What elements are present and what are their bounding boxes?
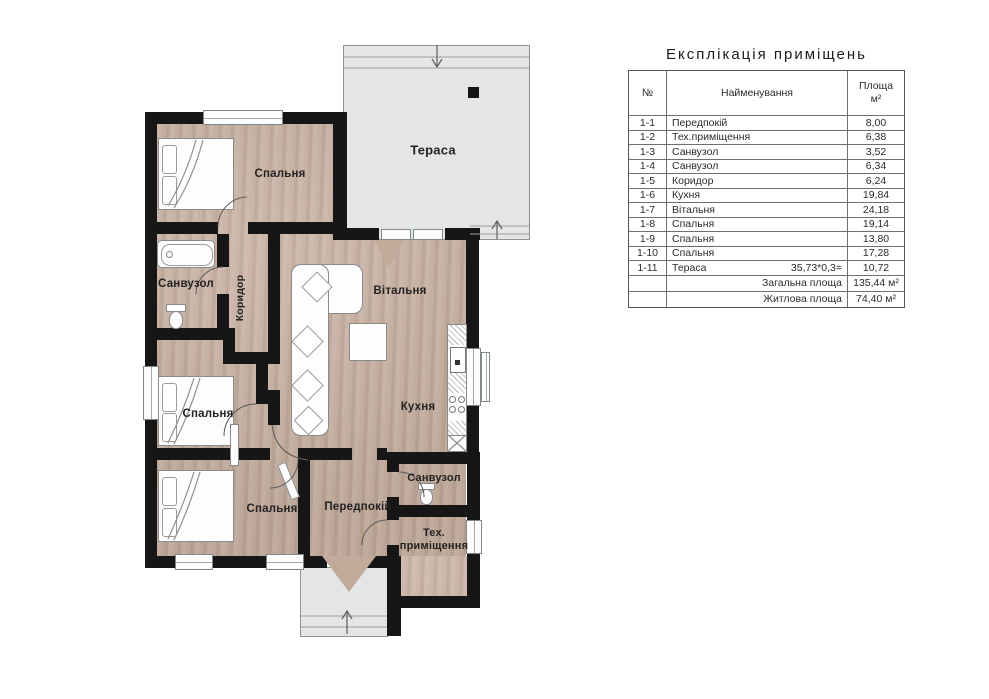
room-label-kitchen: Кухня — [401, 401, 436, 413]
pillow — [162, 145, 177, 174]
row-name: Кухня — [667, 189, 848, 203]
bed — [158, 138, 234, 210]
terrace-door-panel — [413, 229, 443, 240]
toilet — [166, 304, 186, 330]
wall-segment — [387, 452, 480, 464]
summary-value: 135,44 м² — [848, 276, 904, 291]
pillow — [162, 383, 177, 412]
row-name: Спальня — [667, 232, 848, 246]
tech-room-floor — [399, 556, 467, 596]
window-sill — [481, 352, 490, 402]
explication-title: Експлікація приміщень — [628, 46, 905, 63]
row-name: Санвузол — [667, 145, 848, 159]
tech-room-line2: приміщення — [400, 540, 468, 553]
row-area: 13,80 — [848, 232, 904, 246]
terrace-column — [468, 87, 479, 98]
row-area: 19,14 — [848, 218, 904, 232]
wall-segment — [377, 448, 387, 460]
room-label-bathroom-main: Санвузол — [158, 278, 214, 290]
kitchen-worktop — [448, 373, 466, 393]
table-row: 1-2Тех.приміщення6,38 — [629, 130, 904, 145]
wall-segment — [145, 328, 235, 340]
pillow — [162, 413, 177, 442]
wall-segment — [248, 222, 345, 234]
room-label-bathroom-small: Санвузол — [407, 472, 461, 484]
table-row: 1-8Спальня19,14 — [629, 217, 904, 232]
window — [175, 554, 213, 570]
room-name: Спальня — [672, 233, 714, 245]
wall-segment — [298, 460, 310, 556]
room-label-bedroom-top: Спальня — [254, 168, 305, 180]
room-label-bedroom-middle: Спальня — [182, 408, 233, 420]
table-row: 1-9Спальня13,80 — [629, 231, 904, 246]
floor-plan: Тераса Спальня Санвузол Коридор Вітальня… — [0, 0, 620, 699]
window — [203, 110, 283, 125]
wall-segment — [145, 420, 157, 568]
area-formula: 35,73*0,3= — [787, 262, 842, 274]
row-name: Тех.приміщення — [667, 131, 848, 145]
room-label-bedroom-bottom: Спальня — [246, 503, 297, 515]
summary-row: Житлова площа74,40 м² — [629, 291, 904, 307]
table-row: 1-6Кухня19,84 — [629, 188, 904, 203]
room-label-living-room: Вітальня — [373, 285, 426, 297]
header-area-line1: Площа — [859, 80, 893, 93]
summary-label: Загальна площа — [667, 276, 848, 291]
toilet — [418, 483, 435, 506]
wall-segment — [399, 505, 467, 517]
table-row: 1-11Тераса35,73*0,3=10,72 — [629, 260, 904, 275]
wall-segment — [333, 112, 347, 240]
room-name: Кухня — [672, 189, 700, 201]
room-name: Тераса — [672, 262, 706, 274]
row-number: 1-5 — [629, 174, 667, 188]
row-number: 1-2 — [629, 131, 667, 145]
wall-segment — [466, 240, 479, 350]
row-number: 1-4 — [629, 160, 667, 174]
row-number: 1-10 — [629, 247, 667, 261]
wall-segment — [387, 556, 401, 636]
row-area: 17,28 — [848, 247, 904, 261]
header-name: Найменування — [667, 71, 848, 115]
row-area: 10,72 — [848, 261, 904, 275]
wall-segment — [256, 364, 268, 404]
row-number: 1-1 — [629, 116, 667, 130]
row-name: Коридор — [667, 174, 848, 188]
floor-plan-sheet: Тераса Спальня Санвузол Коридор Вітальня… — [0, 0, 989, 699]
room-name: Санвузол — [672, 160, 718, 172]
wall-segment — [467, 552, 480, 598]
coffee-table — [349, 323, 387, 361]
window — [466, 520, 482, 554]
explication-rows: 1-1Передпокій8,001-2Тех.приміщення6,381-… — [629, 115, 904, 307]
tech-room-line1: Тех. — [400, 527, 468, 540]
table-row: 1-7Вітальня24,18 — [629, 202, 904, 217]
wall-segment — [298, 448, 352, 460]
row-name: Спальня — [667, 218, 848, 232]
summary-value: 74,40 м² — [848, 292, 904, 307]
room-label-corridor: Коридор — [234, 275, 246, 322]
wall-segment — [466, 404, 479, 452]
table-header-row: № Найменування Площа м² — [629, 71, 904, 115]
kitchen-sink-zone — [448, 325, 466, 345]
row-name: Санвузол — [667, 160, 848, 174]
room-name: Коридор — [672, 175, 713, 187]
wall-segment — [157, 556, 175, 568]
row-name: Вітальня — [667, 203, 848, 217]
kitchen-counter — [447, 324, 467, 452]
kitchen-worktop — [448, 421, 466, 435]
wall-segment — [399, 596, 480, 608]
pillow — [162, 477, 177, 506]
window — [266, 554, 304, 570]
row-number: 1-8 — [629, 218, 667, 232]
summary-label: Житлова площа — [667, 292, 848, 307]
row-area: 6,38 — [848, 131, 904, 145]
header-area: Площа м² — [848, 71, 904, 115]
table-row: 1-4Санвузол6,34 — [629, 159, 904, 174]
room-name: Спальня — [672, 218, 714, 230]
window — [143, 366, 159, 420]
row-area: 3,52 — [848, 145, 904, 159]
table-row: 1-3Санвузол3,52 — [629, 144, 904, 159]
row-number: 1-6 — [629, 189, 667, 203]
room-name: Спальня — [672, 247, 714, 259]
row-area: 24,18 — [848, 203, 904, 217]
row-number: 1-9 — [629, 232, 667, 246]
wall-segment — [157, 222, 218, 234]
wall-segment — [217, 294, 229, 328]
washer — [448, 435, 466, 452]
room-name: Вітальня — [672, 204, 715, 216]
row-area: 6,24 — [848, 174, 904, 188]
row-number: 1-7 — [629, 203, 667, 217]
room-name: Тех.приміщення — [672, 131, 750, 143]
row-number: 1-11 — [629, 261, 667, 275]
room-label-hallway: Передпокій — [324, 501, 391, 513]
bed — [158, 470, 234, 542]
bathtub — [157, 240, 215, 268]
fridge — [450, 347, 466, 373]
row-name: Тераса35,73*0,3= — [667, 261, 848, 275]
stove — [448, 393, 466, 421]
wall-segment — [268, 390, 280, 425]
pillow — [162, 508, 177, 537]
explication-table: № Найменування Площа м² 1-1Передпокій8,0… — [628, 70, 905, 308]
wall-segment — [145, 448, 270, 460]
row-number: 1-3 — [629, 145, 667, 159]
table-row: 1-5Коридор6,24 — [629, 173, 904, 188]
table-row: 1-1Передпокій8,00 — [629, 115, 904, 130]
wall-segment — [467, 464, 480, 522]
header-area-line2: м² — [871, 93, 882, 106]
summary-number — [629, 276, 667, 291]
door-leaf — [230, 424, 239, 466]
room-name: Санвузол — [672, 146, 718, 158]
summary-row: Загальна площа135,44 м² — [629, 275, 904, 291]
row-name: Передпокій — [667, 116, 848, 130]
bathtub-drain — [166, 251, 173, 258]
wall-segment — [217, 234, 229, 267]
row-area: 6,34 — [848, 160, 904, 174]
row-area: 8,00 — [848, 116, 904, 130]
row-name: Спальня — [667, 247, 848, 261]
header-number: № — [629, 71, 667, 115]
wall-segment — [387, 464, 399, 472]
wall-segment — [268, 234, 280, 364]
wall-segment — [345, 228, 379, 240]
room-label-tech-room: Тех. приміщення — [400, 527, 468, 553]
summary-number — [629, 292, 667, 307]
wall-segment — [213, 556, 266, 568]
table-row: 1-10Спальня17,28 — [629, 246, 904, 261]
wall-segment — [387, 545, 399, 556]
room-label-terrace: Тераса — [410, 143, 456, 158]
room-name: Передпокій — [672, 117, 727, 129]
pillow — [162, 176, 177, 205]
terrace-door-panel — [381, 229, 411, 240]
row-area: 19,84 — [848, 189, 904, 203]
wall-segment — [445, 228, 480, 240]
